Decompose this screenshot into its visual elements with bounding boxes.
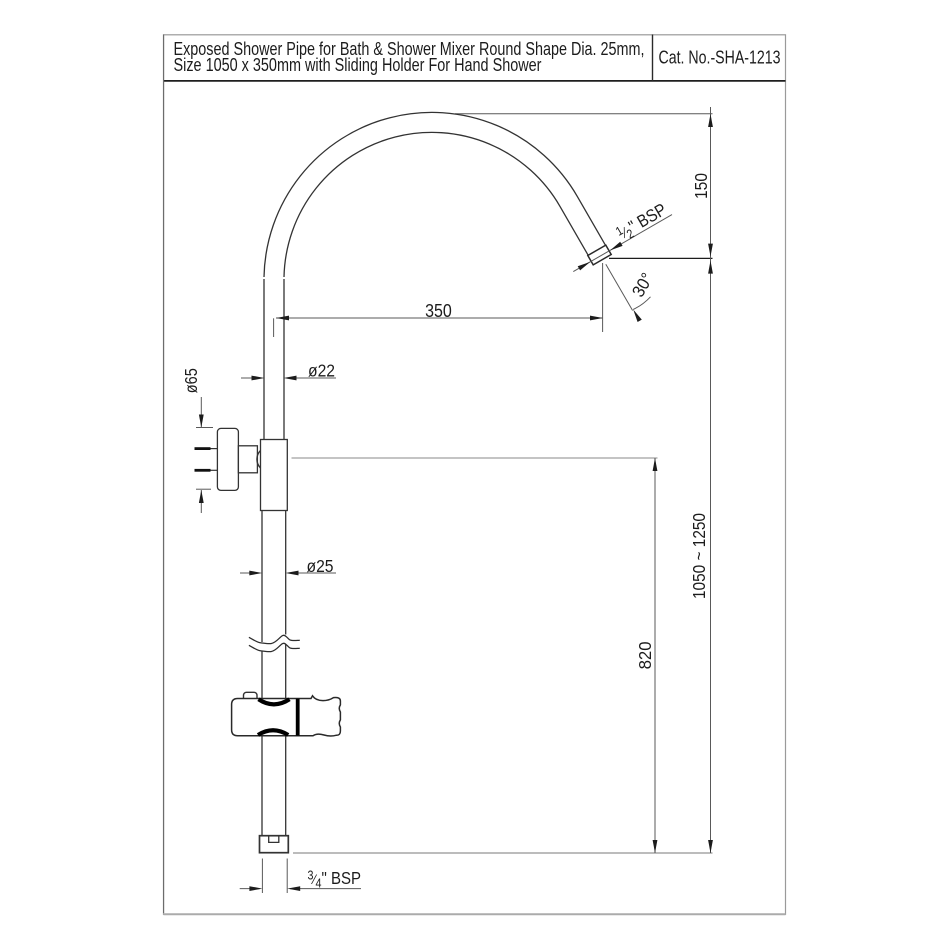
svg-text:350: 350 <box>425 301 452 321</box>
svg-text:1050 ~ 1250: 1050 ~ 1250 <box>689 513 709 599</box>
svg-text:150: 150 <box>691 173 711 199</box>
svg-text:ø65: ø65 <box>181 368 201 393</box>
svg-text:820: 820 <box>635 641 655 669</box>
svg-text:ø25: ø25 <box>307 556 334 576</box>
svg-text:Size 1050 x 350mm with Sliding: Size 1050 x 350mm with Sliding Holder Fo… <box>174 55 542 75</box>
svg-text:ø22: ø22 <box>308 361 335 381</box>
svg-text:Cat. No.-SHA-1213: Cat. No.-SHA-1213 <box>659 48 781 68</box>
